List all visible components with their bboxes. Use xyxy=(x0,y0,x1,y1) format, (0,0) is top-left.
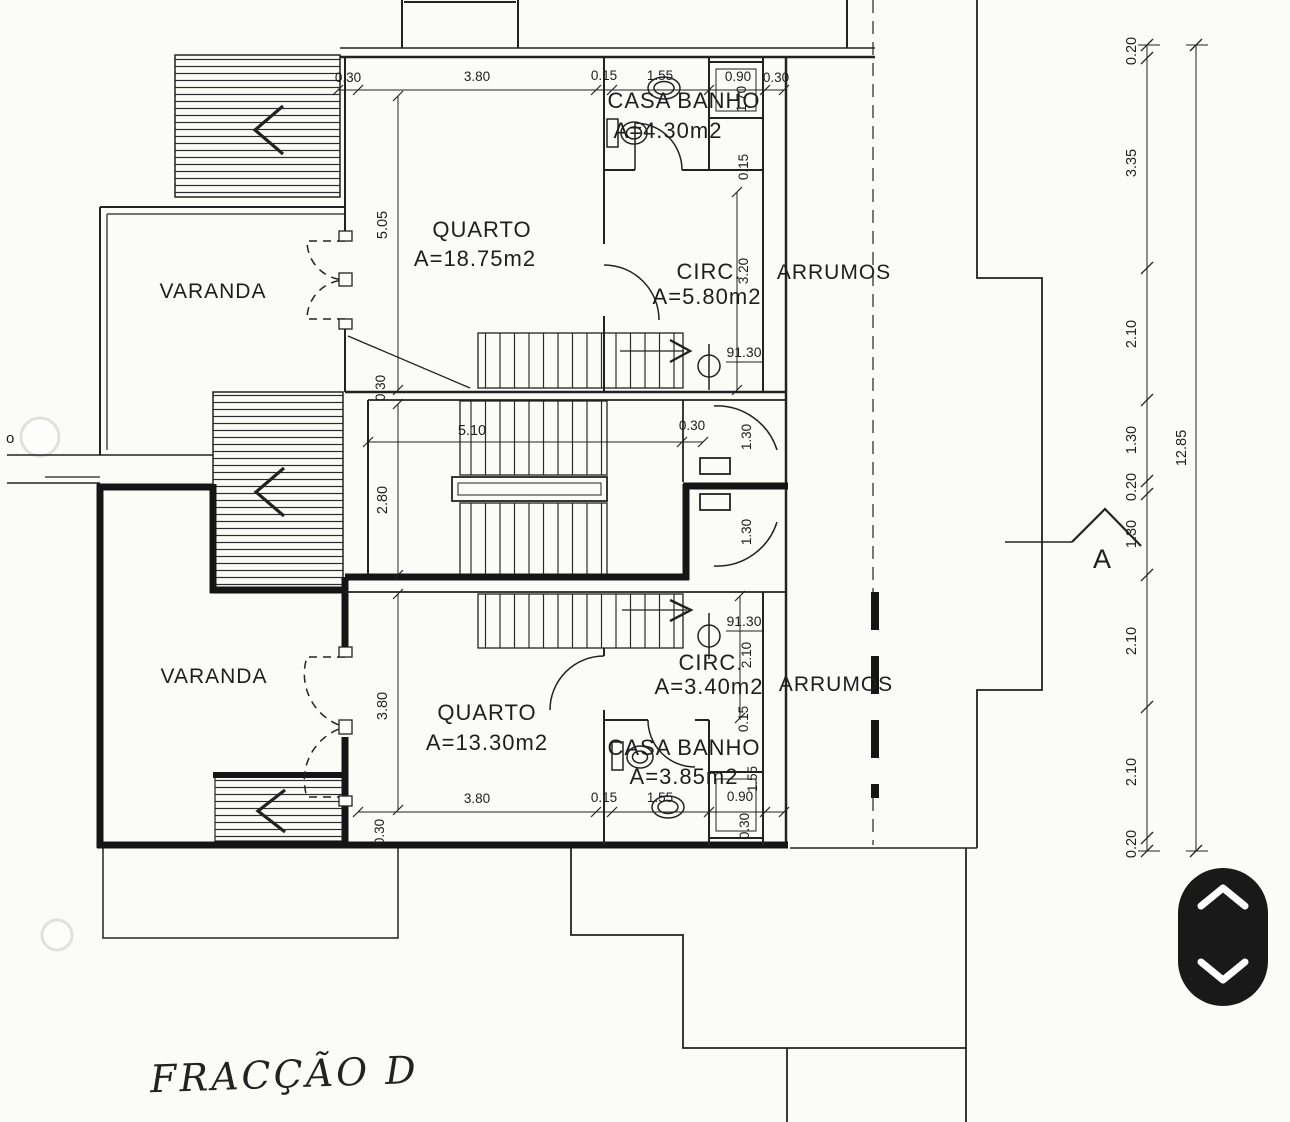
svg-text:2.10: 2.10 xyxy=(1124,320,1140,348)
left-terrace-outline xyxy=(103,848,398,938)
margin-mark: o xyxy=(6,430,14,447)
room-label-quarto-lower: QUARTO xyxy=(437,700,536,725)
level-value-upper: 91.30 xyxy=(726,344,761,360)
chimney-outline xyxy=(402,0,847,48)
svg-text:0.15: 0.15 xyxy=(736,706,751,732)
chevron-up-icon xyxy=(1178,868,1268,937)
hatched-strip-middle xyxy=(213,392,343,588)
svg-text:0.15: 0.15 xyxy=(736,154,751,180)
section-marker: A xyxy=(1005,509,1141,574)
headroom-line xyxy=(348,336,470,388)
svg-text:0.30: 0.30 xyxy=(372,819,387,845)
floor-plan-page: o xyxy=(0,0,1290,1122)
stair-handrail xyxy=(452,477,607,501)
adjacent-building-outline xyxy=(977,0,1042,848)
room-label-banho-upper: CASA BANHO xyxy=(607,88,760,113)
svg-text:0.30: 0.30 xyxy=(763,70,789,85)
svg-text:5.10: 5.10 xyxy=(458,423,486,439)
chevron-down-icon xyxy=(1178,937,1268,1006)
dim-chain-total: 12.85 xyxy=(1174,430,1190,466)
lower-terrace-outline xyxy=(571,848,966,1048)
room-label-circ-upper: CIRC. xyxy=(677,259,742,284)
svg-text:1.55: 1.55 xyxy=(647,790,673,805)
svg-text:1.55: 1.55 xyxy=(745,766,760,792)
svg-text:0.20: 0.20 xyxy=(1124,830,1140,858)
svg-text:3.80: 3.80 xyxy=(464,69,490,84)
scroll-up-button[interactable] xyxy=(1178,868,1268,937)
room-area-banho-lower: A=3.85m2 xyxy=(630,764,739,789)
room-label-varanda-lower: VARANDA xyxy=(161,665,268,688)
svg-text:2.10: 2.10 xyxy=(1124,758,1140,786)
svg-text:2.10: 2.10 xyxy=(1124,627,1140,655)
dimension-chain-labels: 0.20 3.35 2.10 1.30 0.20 1.30 2.10 2.10 … xyxy=(1124,37,1190,858)
room-label-arrumos-upper: ARRUMOS xyxy=(777,261,891,284)
svg-text:A: A xyxy=(1093,544,1111,574)
svg-text:3.80: 3.80 xyxy=(464,791,490,806)
room-area-quarto-upper: A=18.75m2 xyxy=(414,246,536,271)
svg-text:3.80: 3.80 xyxy=(375,692,391,720)
svg-text:2.80: 2.80 xyxy=(375,486,391,514)
scan-hole-punches xyxy=(21,418,72,950)
room-label-quarto-upper: QUARTO xyxy=(432,217,531,242)
svg-text:0.30: 0.30 xyxy=(679,418,705,433)
door-arc xyxy=(604,265,659,320)
svg-text:0.30: 0.30 xyxy=(737,813,752,839)
svg-text:5.05: 5.05 xyxy=(375,211,391,239)
floor-plan-canvas: o xyxy=(0,0,1290,1122)
room-area-circ-upper: A=5.80m2 xyxy=(653,284,762,309)
room-area-quarto-lower: A=13.30m2 xyxy=(426,730,548,755)
room-label-banho-lower: CASA BANHO xyxy=(607,735,760,760)
svg-text:0.90: 0.90 xyxy=(725,69,751,84)
dim-labels-top: 0.30 3.80 0.15 1.55 0.90 0.30 xyxy=(335,68,789,85)
svg-text:1.30: 1.30 xyxy=(1124,426,1140,454)
level-value-lower: 91.30 xyxy=(726,613,761,629)
svg-text:0.15: 0.15 xyxy=(591,790,617,805)
hatched-strips xyxy=(175,55,343,841)
door-arc xyxy=(550,656,604,710)
room-area-banho-upper: A=4.30m2 xyxy=(614,118,723,143)
svg-text:0.15: 0.15 xyxy=(591,68,617,83)
svg-text:3.35: 3.35 xyxy=(1124,149,1140,177)
svg-text:0.30: 0.30 xyxy=(335,70,361,85)
room-label-circ-lower: CIRC. xyxy=(679,650,744,675)
hatched-strip-bottom xyxy=(215,777,343,841)
scroll-down-button[interactable] xyxy=(1178,937,1268,1006)
stair-core xyxy=(368,333,777,648)
svg-text:1.55: 1.55 xyxy=(647,68,673,83)
svg-text:0.30: 0.30 xyxy=(373,375,388,401)
room-area-circ-lower: A=3.40m2 xyxy=(655,674,764,699)
stair-flight-lower xyxy=(478,594,683,648)
stair-flight-mid-down xyxy=(460,503,607,575)
svg-text:1.30: 1.30 xyxy=(739,519,754,545)
dimension-chain-right xyxy=(1138,39,1208,857)
room-label-arrumos-lower: ARRUMOS xyxy=(779,673,893,696)
stair-flight-upper xyxy=(478,333,683,388)
svg-text:0.20: 0.20 xyxy=(1124,37,1140,65)
room-label-varanda-upper: VARANDA xyxy=(160,280,267,303)
scroll-widget xyxy=(1178,868,1268,1006)
svg-text:1.30: 1.30 xyxy=(739,424,754,450)
svg-text:0.20: 0.20 xyxy=(1124,473,1140,501)
